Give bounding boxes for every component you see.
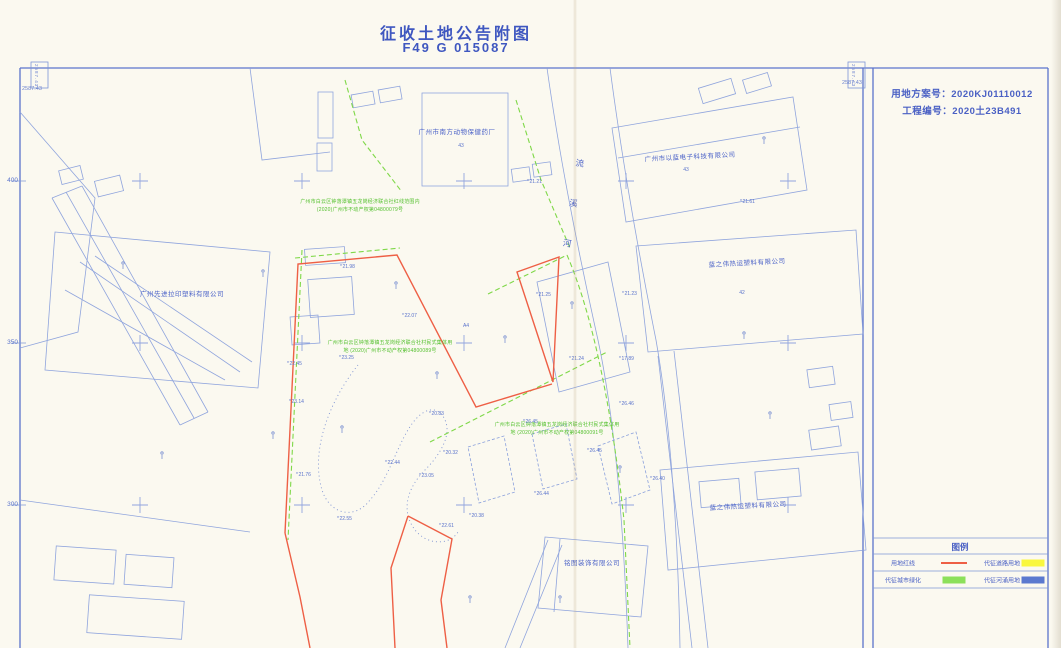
project-number-line: 工程编号：2020土23B491 bbox=[902, 103, 1021, 117]
spot-elevation: 21.61 bbox=[740, 199, 755, 205]
coord-strip-left: 2587.43 bbox=[34, 64, 39, 87]
spot-elevation: 26.44 bbox=[534, 491, 549, 497]
spot-elevation: 26.40 bbox=[650, 476, 665, 482]
green-annotation-3-line1: 广州市白云区钟落潭镇五龙岗经济联合社村民式集体用 bbox=[495, 421, 620, 428]
legend-title: 图例 bbox=[951, 541, 968, 553]
spot-elevation: 21.24 bbox=[569, 356, 584, 362]
spot-elevation: 21.23 bbox=[622, 291, 637, 297]
green-annotation-3-line2: 地 (2020)广州市不动产权第04800091号 bbox=[510, 429, 603, 436]
company-label-south-pharma: 广州市南方动物保健药厂 bbox=[419, 126, 496, 136]
green-annotation-1-line1: 广州市白云区钟落潭镇五龙岗经济联合社红线范围内 bbox=[300, 198, 420, 205]
dashed-buildings bbox=[468, 424, 650, 504]
parcel-code: 43 bbox=[458, 143, 464, 149]
spot-elevation: 20.38 bbox=[469, 513, 484, 519]
legend-swatch-red-line bbox=[941, 562, 967, 564]
spot-elevation: 22.07 bbox=[402, 313, 417, 319]
spot-elevation: 26.46 bbox=[619, 401, 634, 407]
legend-label-greening: 代征城市绿化 bbox=[885, 576, 921, 585]
coord-strip-right: 2587.43 bbox=[851, 64, 856, 87]
spot-elevation: 21.76 bbox=[296, 472, 311, 478]
legend-swatch-road-yellow bbox=[1022, 560, 1045, 567]
legend-label-road: 代征道路用地 bbox=[984, 559, 1020, 568]
green-annotation-2-line1: 广州市白云区钟落潭镇五龙岗经济联合社村民式集体用 bbox=[328, 339, 453, 346]
spot-elevation: 21.98 bbox=[340, 264, 355, 270]
parcel-code: A4 bbox=[463, 323, 469, 329]
company-label-mingtu-decoration: 铭图装饰有限公司 bbox=[564, 557, 620, 567]
spot-elevation: 22.61 bbox=[439, 523, 454, 529]
cadastral-linework bbox=[20, 68, 866, 648]
axis-label-400: 400 bbox=[7, 177, 18, 184]
green-annotation-2-line2: 地 (2020)广州市不动产权第04800089号 bbox=[343, 347, 436, 354]
company-label-xianjin-plastics: 广州先进拉印塑料有限公司 bbox=[140, 288, 224, 298]
parcel-code: 43 bbox=[683, 167, 689, 173]
legend-swatch-greening bbox=[943, 577, 966, 584]
axis-label-300: 300 bbox=[7, 501, 18, 508]
spot-elevation: 22.44 bbox=[385, 460, 400, 466]
spot-elevation: 26.45 bbox=[523, 419, 538, 425]
spot-elevation: 23.25 bbox=[339, 355, 354, 361]
spot-elevation: 17.89 bbox=[619, 356, 634, 362]
spot-elevation: 23.14 bbox=[289, 399, 304, 405]
spot-elevation: 26.45 bbox=[587, 448, 602, 454]
legend-swatch-river-blue bbox=[1022, 577, 1045, 584]
spot-elevation: 23.05 bbox=[419, 473, 434, 479]
green-annotation-1-line2: (2020)广州市不动产权第04800079号 bbox=[317, 206, 403, 213]
grid-crosses bbox=[132, 173, 796, 513]
axis-label-350: 350 bbox=[7, 339, 18, 346]
page-title-code: F49 G 015087 bbox=[402, 40, 509, 55]
scanned-land-acquisition-map: { "page": { "title_line1": "征收土地公告附图", "… bbox=[0, 0, 1061, 648]
spot-elevation: 20.83 bbox=[429, 411, 444, 417]
spot-elevation: 21.21 bbox=[527, 179, 542, 185]
parcel-code: 42 bbox=[739, 290, 745, 296]
map-symbols bbox=[122, 137, 771, 603]
legend-label-river-land: 代征河涌用地 bbox=[984, 576, 1020, 585]
red-boundary bbox=[285, 255, 559, 648]
spot-elevation: 22.55 bbox=[337, 516, 352, 522]
spot-elevation: 20.32 bbox=[443, 450, 458, 456]
plan-number-line: 用地方案号：2020KJ01110012 bbox=[891, 86, 1033, 100]
spot-elevation: 22.45 bbox=[287, 361, 302, 367]
legend-label-red-line: 用地红线 bbox=[891, 559, 915, 568]
spot-elevation: 21.25 bbox=[536, 292, 551, 298]
